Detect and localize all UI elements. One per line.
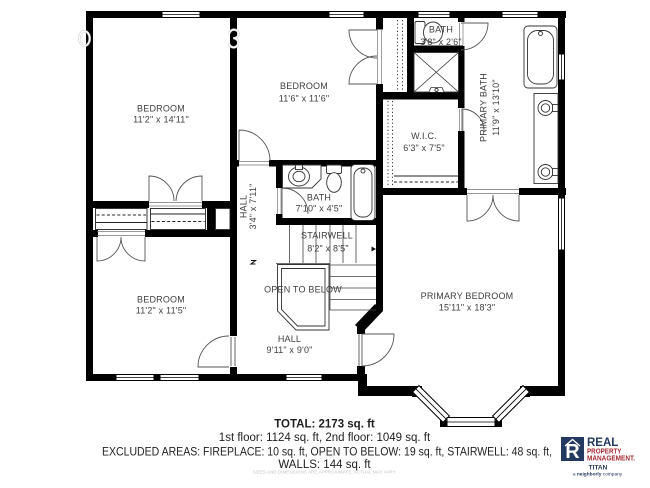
svg-text:BEDROOM: BEDROOM — [137, 104, 185, 114]
svg-text:11'2" x 14'11": 11'2" x 14'11" — [133, 115, 189, 125]
svg-text:a neighborly company: a neighborly company — [573, 472, 623, 478]
svg-text:EXCLUDED AREAS: FIREPLACE: 10: EXCLUDED AREAS: FIREPLACE: 10 sq. ft, OP… — [102, 447, 552, 459]
svg-text:TITAN: TITAN — [589, 465, 608, 472]
svg-text:11'2" x 11'5": 11'2" x 11'5" — [136, 306, 187, 316]
svg-text:3'8" x 2'6": 3'8" x 2'6" — [420, 37, 462, 47]
svg-text:BEDROOM: BEDROOM — [137, 295, 185, 305]
svg-text:9'11" x 9'0": 9'11" x 9'0" — [266, 345, 312, 355]
svg-text:3'4" x 7'11": 3'4" x 7'11" — [248, 183, 258, 229]
svg-text:PRIMARY BEDROOM: PRIMARY BEDROOM — [421, 291, 514, 301]
svg-text:BATH: BATH — [307, 193, 331, 203]
svg-text:OPEN TO BELOW: OPEN TO BELOW — [264, 285, 342, 295]
svg-text:8'2" x 8'5": 8'2" x 8'5" — [307, 244, 349, 254]
svg-text:6'3" x 7'5": 6'3" x 7'5" — [403, 143, 445, 153]
svg-text:PRIMARY BATH: PRIMARY BATH — [479, 73, 489, 142]
svg-text:TOTAL: 2173 sq. ft: TOTAL: 2173 sq. ft — [274, 419, 375, 431]
svg-text:11'6" x 11'6": 11'6" x 11'6" — [279, 94, 330, 104]
svg-text:MANAGEMENT.: MANAGEMENT. — [587, 454, 635, 463]
svg-text:W.I.C.: W.I.C. — [411, 131, 437, 141]
svg-text:BATH: BATH — [429, 25, 453, 35]
svg-text:SIZES AND DIMENSIONS ARE APPRO: SIZES AND DIMENSIONS ARE APPROXIMATE, AC… — [253, 470, 397, 475]
svg-text:HALL: HALL — [239, 195, 249, 218]
svg-text:1st floor: 1124 sq. ft, 2nd fl: 1st floor: 1124 sq. ft, 2nd floor: 1049 … — [219, 432, 431, 444]
svg-text:BEDROOM: BEDROOM — [280, 81, 328, 91]
svg-text:15'11" x 18'3": 15'11" x 18'3" — [439, 303, 496, 313]
svg-text:STAIRWELL: STAIRWELL — [301, 231, 353, 241]
svg-text:7'10" x 4'5": 7'10" x 4'5" — [296, 204, 343, 214]
svg-text:11'9" x 13'10": 11'9" x 13'10" — [491, 79, 501, 136]
svg-text:HALL: HALL — [278, 334, 301, 344]
